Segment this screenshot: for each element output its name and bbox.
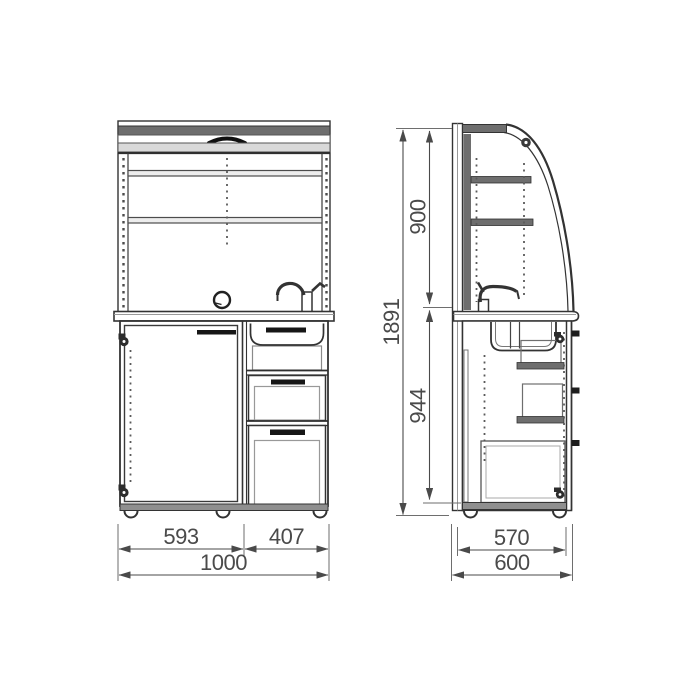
base-plinth <box>120 504 328 511</box>
dim-label-overall-height: 1891 <box>379 298 404 345</box>
front-dimensions: 593 407 1000 <box>118 524 329 581</box>
side-feet <box>464 511 566 518</box>
front-upper-section <box>114 121 334 321</box>
shutter-band-dark <box>118 126 330 135</box>
shutter-band-gray <box>118 143 330 152</box>
bottom-drawer-handle <box>270 430 305 436</box>
foot-icon <box>553 511 566 518</box>
cabinet-drawing: 593 407 1000 <box>0 0 700 700</box>
dim-label-total-width: 1000 <box>200 550 247 575</box>
side-base-plinth <box>463 503 567 510</box>
countertop-front <box>114 312 334 322</box>
dim-label-door-width: 593 <box>163 524 198 549</box>
front-feet <box>125 511 327 518</box>
side-base-cabinet <box>463 321 580 511</box>
shutter-roll-icon <box>521 138 531 148</box>
sink-drawer-handle <box>266 328 306 333</box>
side-door-profile <box>464 350 468 502</box>
side-drawer-1-bottom <box>517 363 564 370</box>
side-handle-tick-1 <box>572 331 580 337</box>
front-base-cabinet <box>119 321 329 511</box>
faucet-side <box>478 283 519 313</box>
bottom-drawer <box>249 426 326 507</box>
cup-symbol <box>214 292 230 308</box>
side-view <box>453 124 580 518</box>
countertop-side <box>454 312 579 322</box>
cabinet-door <box>125 326 238 502</box>
middle-drawer-handle <box>271 380 305 385</box>
technical-drawing-canvas: 593 407 1000 <box>0 0 700 700</box>
foot-icon <box>217 511 230 518</box>
dim-label-body-depth: 570 <box>494 525 529 550</box>
shelf-2 <box>128 218 322 224</box>
shelf-1 <box>128 171 322 177</box>
side-handle-tick-3 <box>572 440 580 446</box>
shutter-strip <box>464 134 472 310</box>
front-view <box>114 121 334 518</box>
side-handle-tick-2 <box>572 388 580 394</box>
dim-label-total-depth: 600 <box>494 550 529 575</box>
top-cap <box>463 125 507 133</box>
dim-label-drawers-width: 407 <box>269 524 304 549</box>
side-base-body <box>463 321 572 511</box>
shutter-curve-outer <box>506 125 574 312</box>
side-dimensions: 570 600 <box>452 524 573 581</box>
foot-icon <box>464 511 477 518</box>
side-shelf-1 <box>471 177 531 184</box>
dim-label-base-height: 944 <box>406 388 431 423</box>
height-dimensions: 1891 900 944 <box>379 129 461 516</box>
dim-label-upper-height: 900 <box>406 199 431 234</box>
sink-drawer-box <box>253 346 322 370</box>
foot-icon <box>314 511 327 518</box>
foot-icon <box>125 511 138 518</box>
side-drawer-2-bottom <box>517 417 564 424</box>
door-handle <box>197 330 236 335</box>
